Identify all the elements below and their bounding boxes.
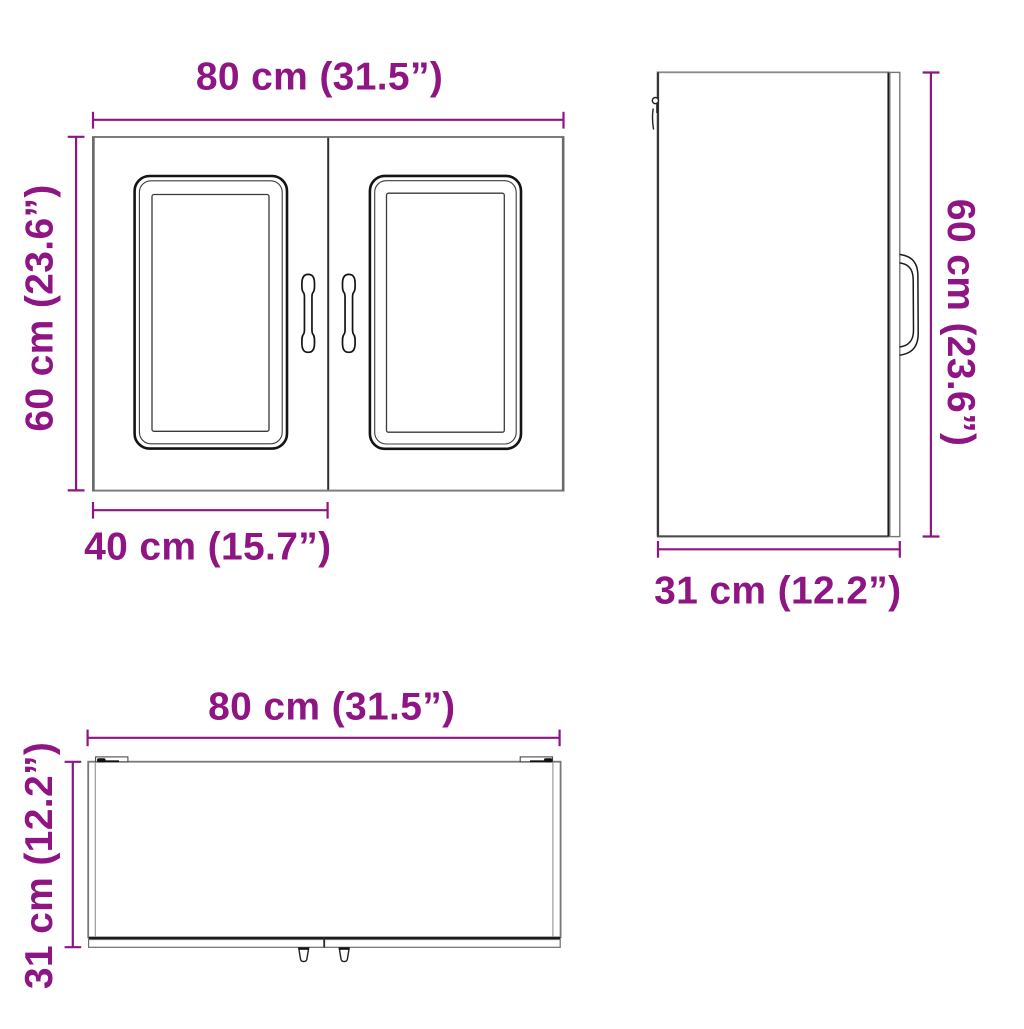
svg-text:31 cm (12.2”): 31 cm (12.2”) (654, 569, 901, 612)
svg-text:60 cm (23.6”): 60 cm (23.6”) (19, 184, 62, 431)
svg-text:80 cm (31.5”): 80 cm (31.5”) (208, 686, 455, 729)
svg-text:80 cm (31.5”): 80 cm (31.5”) (196, 56, 443, 99)
svg-text:31 cm (12.2”): 31 cm (12.2”) (18, 742, 61, 989)
svg-text:40 cm (15.7”): 40 cm (15.7”) (84, 525, 331, 568)
svg-text:60 cm (23.6”): 60 cm (23.6”) (939, 199, 982, 446)
